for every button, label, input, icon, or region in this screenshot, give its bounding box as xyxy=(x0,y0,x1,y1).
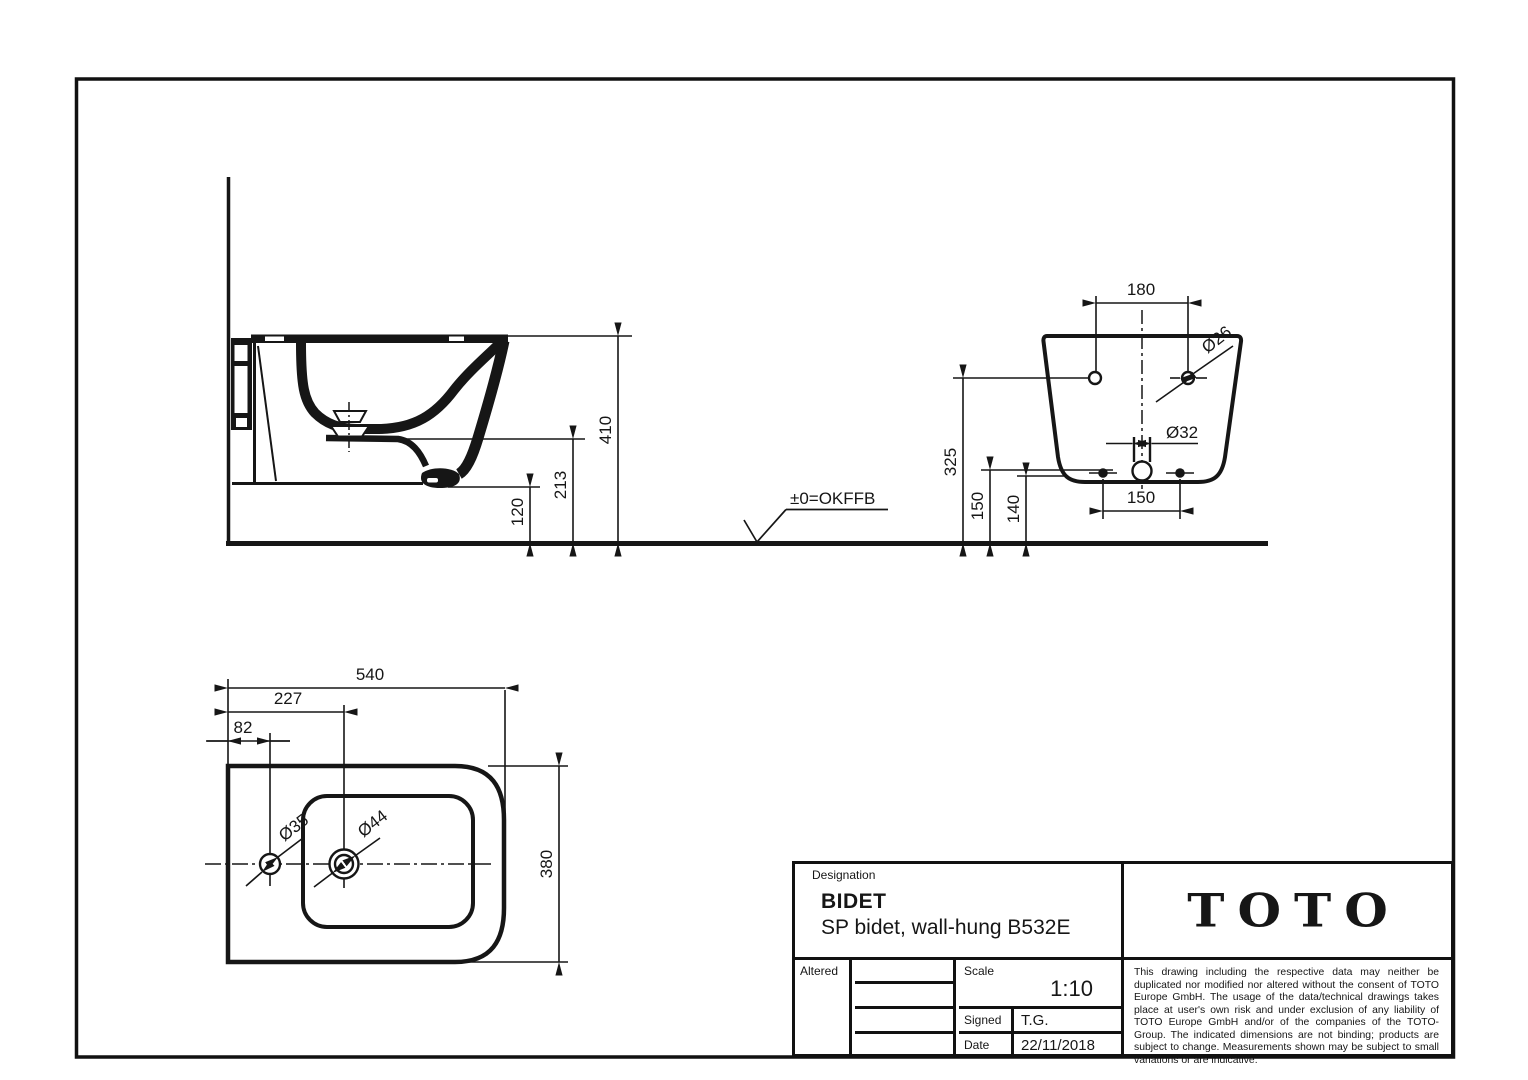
dim-rear-dia32: Ø32 xyxy=(1166,423,1198,442)
dim-rear-150h: 150 xyxy=(1127,488,1155,507)
drawing-sheet: 410 213 120 ±0=OKFFB xyxy=(0,0,1528,1080)
dim-top-82: 82 xyxy=(234,718,253,737)
product-title: BIDET xyxy=(821,890,887,914)
dim-side-120: 120 xyxy=(508,498,527,526)
brand-cell: TOTO xyxy=(1124,864,1451,960)
dim-top-540: 540 xyxy=(356,665,384,684)
datum-label: ±0=OKFFB xyxy=(790,489,875,508)
toto-logo: TOTO xyxy=(1187,888,1401,934)
scale-value: 1:10 xyxy=(1050,976,1093,1002)
revision-row-divider xyxy=(855,981,956,984)
dim-top-227: 227 xyxy=(274,689,302,708)
dim-side-410: 410 xyxy=(596,416,615,444)
date-label: Date xyxy=(959,1034,1014,1054)
dim-rear-325: 325 xyxy=(941,448,960,476)
top-view-bidet xyxy=(205,705,504,962)
dim-side-213: 213 xyxy=(551,471,570,499)
side-view-bidet-section xyxy=(231,335,508,489)
scale-cell: Scale 1:10 xyxy=(959,960,1121,1006)
signed-label: Signed xyxy=(959,1009,1014,1034)
dim-top-380: 380 xyxy=(537,850,556,878)
dim-rear-140: 140 xyxy=(1004,495,1023,523)
dim-rear-180: 180 xyxy=(1127,280,1155,299)
revision-column xyxy=(855,960,956,1054)
disclaimer-text: This drawing including the respective da… xyxy=(1121,960,1448,1054)
datum-leader xyxy=(744,510,888,543)
designation-label: Designation xyxy=(812,868,875,882)
revision-row-divider xyxy=(855,1031,956,1034)
dim-rear-150v: 150 xyxy=(968,492,987,520)
altered-label: Altered xyxy=(800,964,838,978)
date-value: 22/11/2018 xyxy=(1017,1034,1121,1054)
revision-row-divider xyxy=(855,1006,956,1009)
designation-cell: Designation BIDET SP bidet, wall-hung B5… xyxy=(795,864,1124,960)
signed-value: T.G. xyxy=(1017,1009,1121,1034)
altered-cell: Altered xyxy=(795,960,852,1054)
product-subtitle: SP bidet, wall-hung B532E xyxy=(821,916,1070,940)
scale-label: Scale xyxy=(964,964,994,978)
title-block: Designation BIDET SP bidet, wall-hung B5… xyxy=(792,861,1454,1057)
